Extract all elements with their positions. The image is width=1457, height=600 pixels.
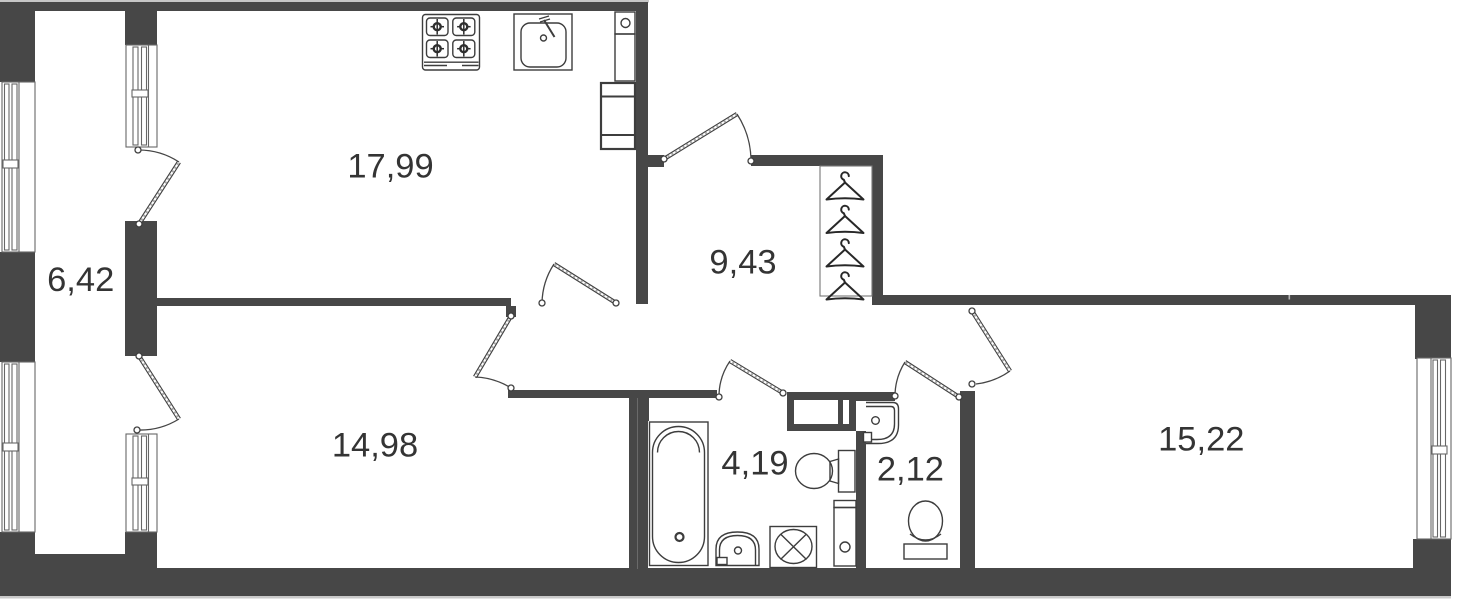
- svg-text:4,19: 4,19: [721, 445, 788, 483]
- svg-text:17,99: 17,99: [347, 148, 433, 186]
- svg-text:2,12: 2,12: [877, 451, 944, 489]
- svg-text:9,43: 9,43: [709, 244, 776, 282]
- svg-text:6,42: 6,42: [47, 261, 114, 299]
- svg-text:14,98: 14,98: [332, 427, 418, 465]
- svg-text:15,22: 15,22: [1158, 421, 1244, 459]
